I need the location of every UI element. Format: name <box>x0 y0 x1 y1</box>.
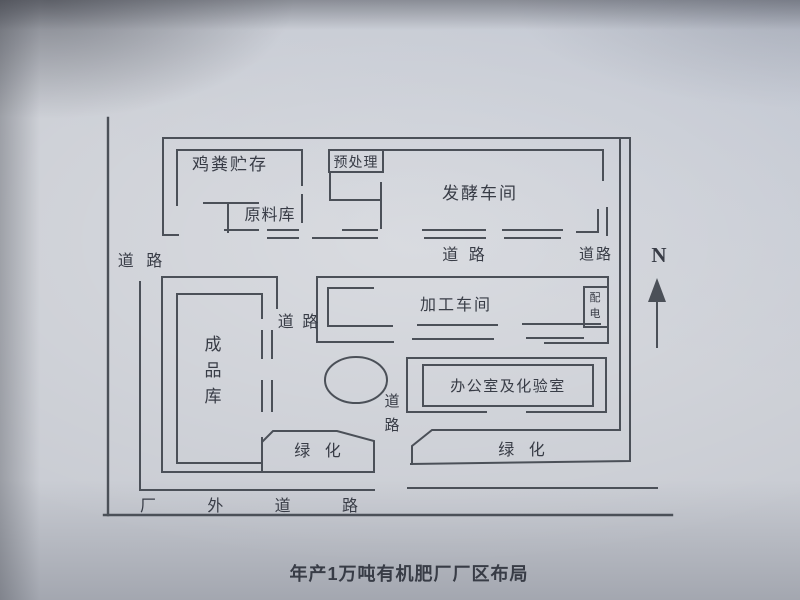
compass-north-label: N <box>651 243 666 267</box>
label-chicken-manure-storage: 鸡粪贮存 <box>192 155 268 174</box>
north-road-dashes <box>225 230 562 238</box>
factory-boundary-lines <box>140 138 657 490</box>
label-outside-road: 厂 外 道 路 <box>140 497 358 515</box>
label-processing-workshop: 加工车间 <box>420 296 492 314</box>
label-road-west: 道 路 <box>118 252 166 270</box>
north-arrow-icon <box>648 278 666 347</box>
label-raw-material-warehouse: 原料库 <box>244 206 295 224</box>
label-road-south-vertical: 道路 <box>384 393 399 434</box>
label-greening-east: 绿 化 <box>498 441 549 459</box>
label-pretreatment: 预处理 <box>334 154 379 170</box>
outer-road-lines <box>104 118 672 515</box>
photographed-page: 鸡粪贮存 预处理 发酵车间 原料库 道 路 道 路 道路 加工车间 配电 道 路… <box>0 0 800 600</box>
site-plan-diagram: 鸡粪贮存 预处理 发酵车间 原料库 道 路 道 路 道路 加工车间 配电 道 路… <box>0 0 800 600</box>
figure-caption: 年产1万吨有机肥厂厂区布局 <box>289 563 528 584</box>
finished-product-warehouse-outline <box>177 294 272 463</box>
label-office-lab: 办公室及化验室 <box>450 378 566 395</box>
label-greening-west: 绿 化 <box>294 442 345 460</box>
label-finished-product-warehouse: 成品库 <box>205 335 222 406</box>
label-road-north-east: 道路 <box>579 246 613 263</box>
label-power-distribution: 配电 <box>590 291 601 320</box>
circle-structure <box>325 357 387 403</box>
label-road-middle: 道 路 <box>278 313 320 331</box>
label-fermentation-workshop: 发酵车间 <box>442 184 518 203</box>
label-road-north-center: 道 路 <box>442 246 487 264</box>
